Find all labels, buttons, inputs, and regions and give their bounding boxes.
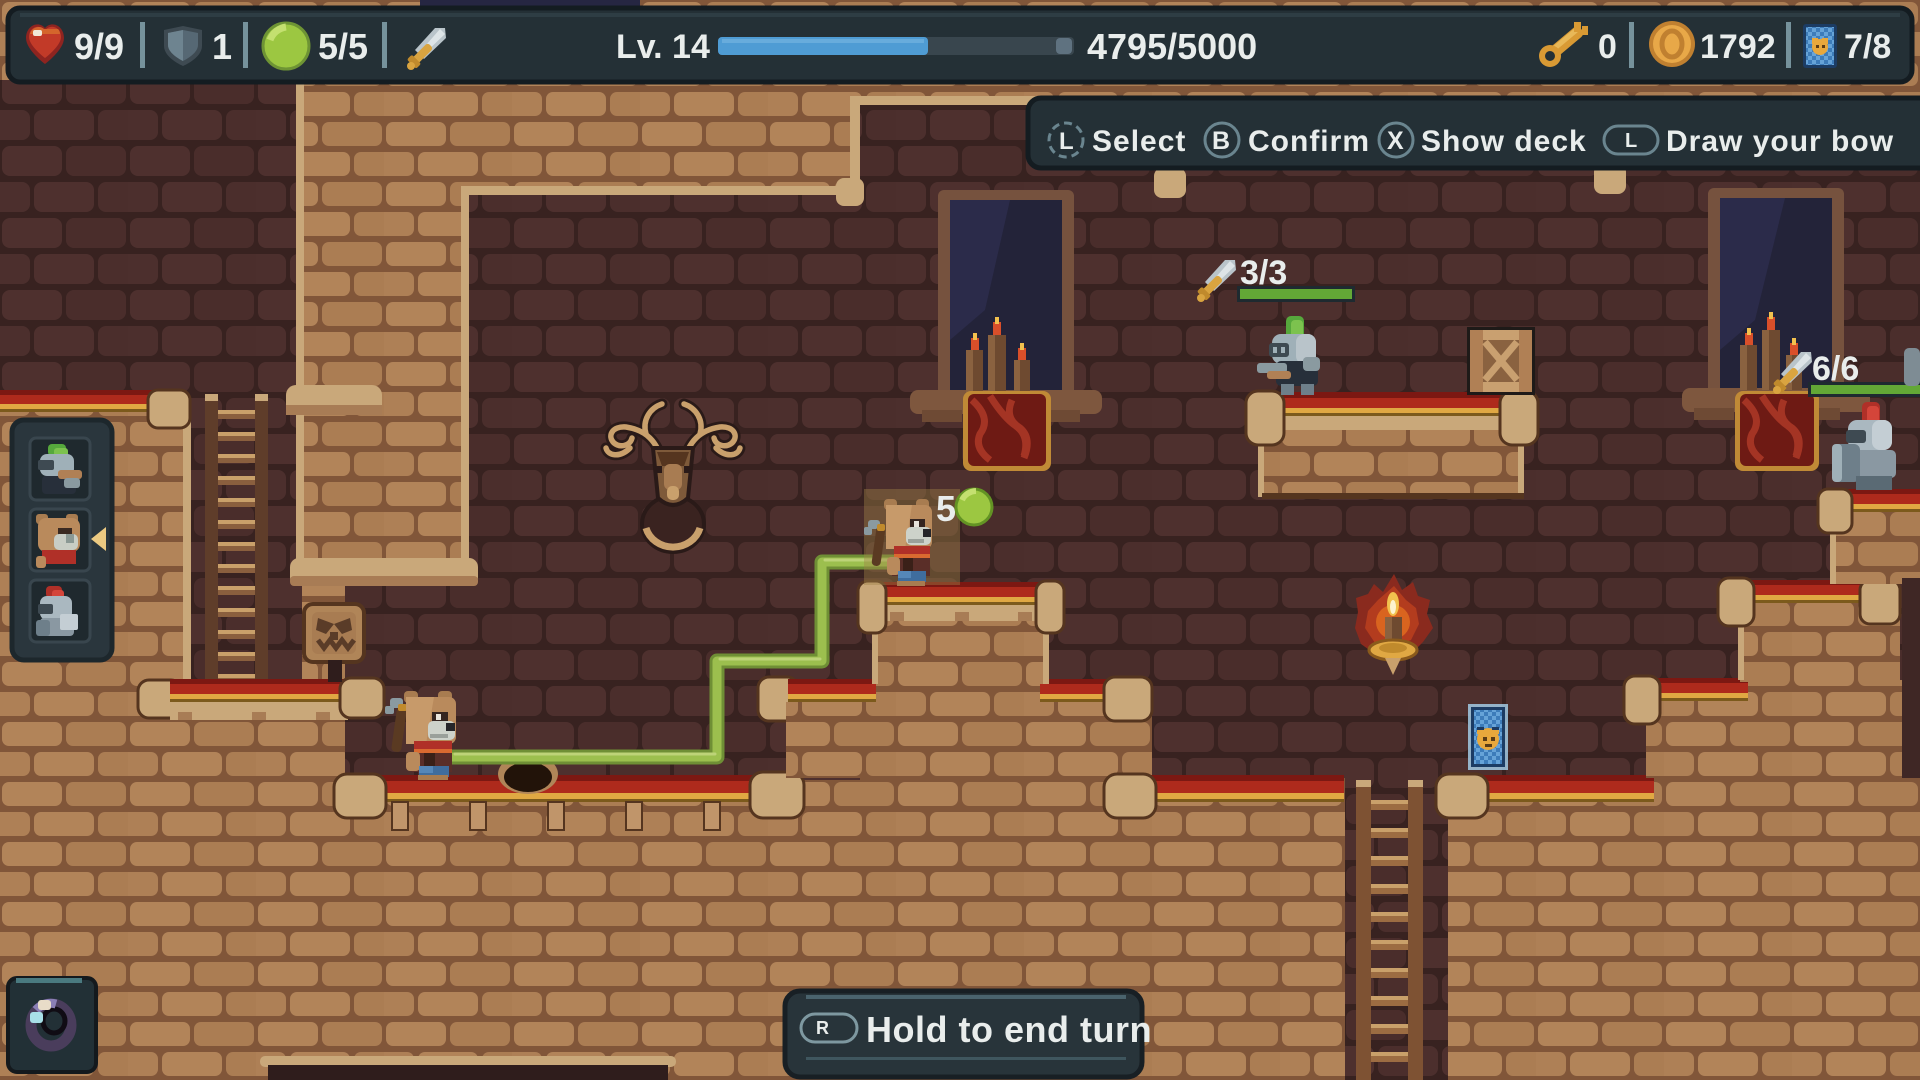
svg-text:7/8: 7/8 <box>1844 28 1891 66</box>
svg-text:Select: Select <box>1092 125 1186 158</box>
svg-text:5/5: 5/5 <box>318 26 368 67</box>
svg-text:Lv. 14: Lv. 14 <box>616 28 710 66</box>
svg-text:B: B <box>1212 127 1230 155</box>
svg-text:5: 5 <box>936 488 956 529</box>
svg-text:Confirm: Confirm <box>1248 125 1370 158</box>
svg-text:L: L <box>1625 130 1637 152</box>
svg-text:X: X <box>1387 127 1404 155</box>
svg-text:Draw your bow: Draw your bow <box>1666 125 1894 158</box>
svg-text:Show deck: Show deck <box>1421 125 1587 158</box>
svg-text:R: R <box>816 1018 829 1038</box>
svg-text:9/9: 9/9 <box>74 26 124 67</box>
svg-text:1792: 1792 <box>1700 28 1776 66</box>
svg-text:1: 1 <box>212 26 232 67</box>
svg-text:Hold to end turn: Hold to end turn <box>866 1009 1152 1050</box>
svg-text:L: L <box>1059 128 1074 155</box>
svg-text:4795/5000: 4795/5000 <box>1087 26 1257 67</box>
svg-text:0: 0 <box>1598 28 1617 66</box>
